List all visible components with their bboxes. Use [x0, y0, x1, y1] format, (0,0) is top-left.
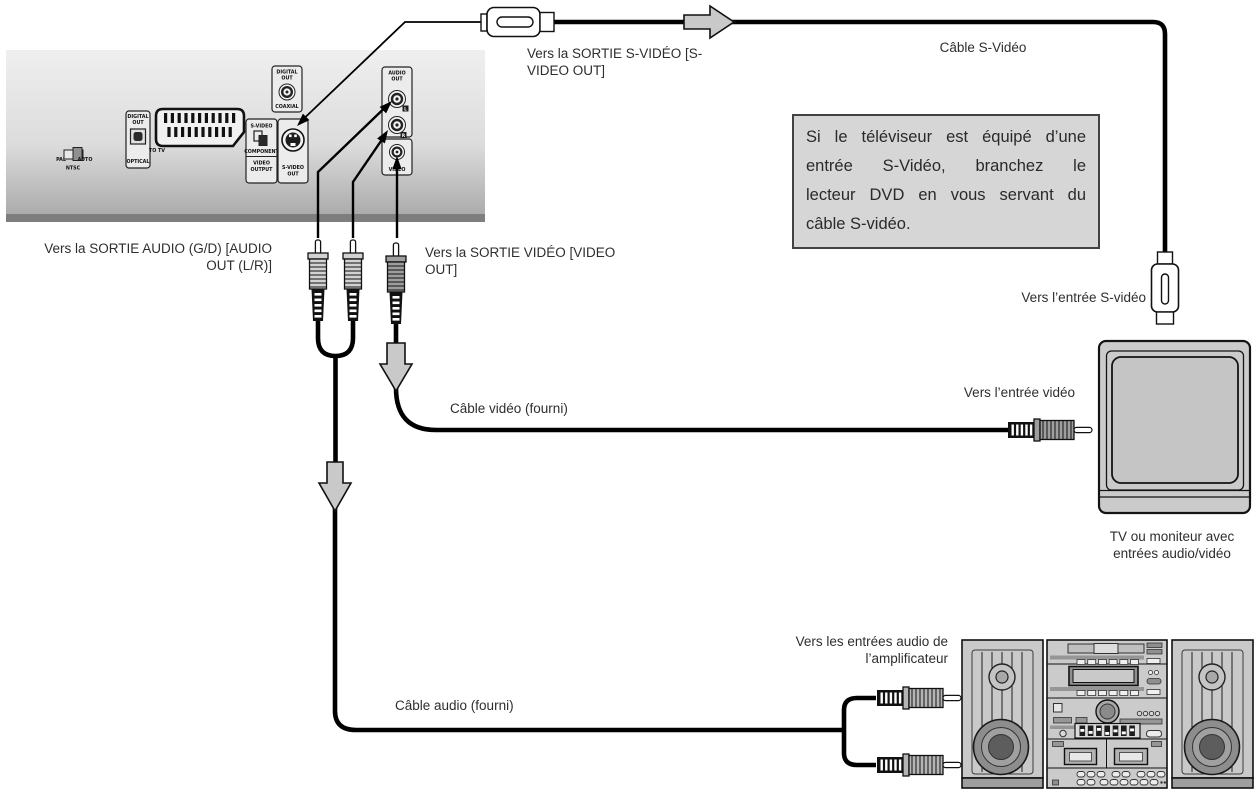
dvd-rear-panel: PAL AUTO NTSC DIGITAL OUT OPTICAL	[6, 50, 485, 222]
label-to-s-video-input: Vers l’entrée S-vidéo	[956, 290, 1146, 307]
digital-out-coaxial-port: DIGITAL OUT COAXIAL	[272, 66, 302, 112]
note-line: lecteur DVD en vous servant du	[806, 181, 1086, 210]
digital-out-optical-port: DIGITAL OUT OPTICAL	[126, 111, 150, 168]
tv-monitor	[1099, 341, 1250, 513]
amplifier-system	[962, 640, 1253, 788]
label-video-cable: Câble vidéo (fourni)	[450, 401, 670, 418]
svg-text:AUDIO: AUDIO	[388, 71, 405, 77]
label-to-audio-out: Vers la SORTIE AUDIO (G/D) [AUDIO OUT (L…	[30, 241, 272, 274]
s-video-out-port: S-VIDEO OUT	[278, 119, 308, 183]
s-video-note-box: Si le téléviseur est équipé d’une entrée…	[792, 114, 1100, 249]
label-to-amplifier-audio-inputs: Vers les entrées audio de l’amplificateu…	[760, 634, 948, 667]
audio-cable-split	[844, 698, 876, 765]
svg-text:COMPONENT: COMPONENT	[244, 149, 279, 155]
right-speaker	[1172, 640, 1253, 788]
svg-text:OUT: OUT	[391, 77, 403, 83]
amplifier-main-unit	[1047, 640, 1167, 788]
svg-text:VIDEO: VIDEO	[253, 161, 270, 167]
svg-text:OUTPUT: OUTPUT	[251, 167, 274, 173]
label-to-video-input: Vers l’entrée vidéo	[935, 385, 1075, 402]
note-line: câble S-vidéo.	[806, 210, 1086, 239]
svg-text:DIGITAL: DIGITAL	[127, 114, 148, 120]
svg-text:S-VIDEO: S-VIDEO	[282, 165, 304, 171]
arrow-right-s-video	[684, 6, 734, 38]
auto-label: AUTO	[78, 157, 93, 163]
label-to-video-out: Vers la SORTIE VIDÉO [VIDEO OUT]	[425, 245, 675, 278]
left-speaker	[962, 640, 1043, 788]
rca-plug-amp-top	[877, 687, 961, 709]
svg-text:COAXIAL: COAXIAL	[275, 104, 298, 110]
rca-plug-amp-bottom	[877, 754, 961, 776]
to-tv-label: TO TV	[149, 148, 165, 154]
s-video-plug-top	[481, 8, 554, 37]
audio-out-ports: AUDIO OUT L R	[382, 67, 412, 138]
svg-text:OUT: OUT	[287, 172, 299, 178]
rca-plug-tv-video	[1008, 419, 1092, 441]
arrow-down-video	[380, 343, 412, 391]
rca-plug-audio-left	[308, 240, 328, 321]
note-line: entrée S-Vidéo, branchez le	[806, 152, 1086, 181]
audio-cable-merge	[318, 319, 353, 356]
label-to-s-video-out: Vers la SORTIE S-VIDÉO [S- VIDEO OUT]	[527, 46, 777, 79]
label-tv-caption: TV ou moniteur avec entrées audio/vidéo	[1084, 529, 1259, 562]
tv-screen	[1112, 357, 1238, 483]
svg-text:S-VIDEO: S-VIDEO	[251, 124, 273, 130]
label-audio-cable: Câble audio (fourni)	[395, 698, 615, 715]
note-line: Si le téléviseur est équipé d’une	[806, 123, 1086, 152]
dvd-panel-bottom-edge	[6, 214, 485, 222]
component-video-output-port: S-VIDEO COMPONENT VIDEO OUTPUT	[244, 119, 279, 183]
svg-text:OUT: OUT	[281, 76, 293, 82]
svg-text:L: L	[404, 106, 407, 111]
label-s-video-cable: Câble S-Vidéo	[883, 40, 1083, 57]
s-video-plug-tv	[1152, 252, 1179, 324]
svg-text:OUT: OUT	[132, 120, 144, 126]
arrow-down-audio	[319, 462, 351, 511]
connection-diagram: PAL AUTO NTSC DIGITAL OUT OPTICAL	[0, 0, 1259, 795]
rca-plug-audio-right	[343, 240, 363, 321]
audio-cable-run	[335, 506, 844, 730]
scart-port: TO TV	[149, 109, 244, 154]
svg-text:OPTICAL: OPTICAL	[127, 159, 150, 165]
rca-plug-video	[386, 243, 406, 324]
ntsc-label: NTSC	[66, 166, 81, 172]
svg-text:DIGITAL: DIGITAL	[276, 70, 297, 76]
